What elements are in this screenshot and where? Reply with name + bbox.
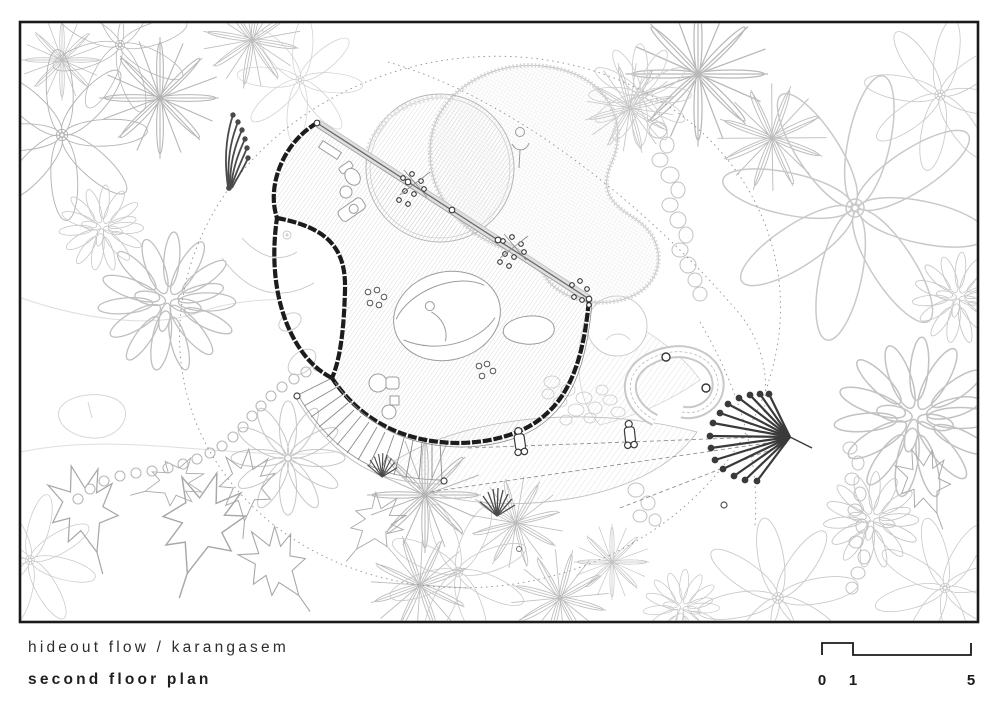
tree-canopy — [587, 296, 647, 356]
site-marker-dot — [721, 502, 727, 508]
project-title: hideout flow / karangasem — [28, 639, 289, 656]
drawing-sheet: hideout flow / karangasem second floor p… — [0, 0, 1000, 707]
floor-plan-canvas: hideout flow / karangasem second floor p… — [0, 0, 1000, 707]
stool — [340, 186, 352, 198]
side-table — [390, 396, 399, 405]
lounge-chair — [369, 374, 399, 392]
drawing-title: second floor plan — [28, 671, 212, 688]
scale-bar: 0 1 5 — [818, 643, 975, 689]
site-marker-dot — [517, 547, 522, 552]
scale-label-1: 1 — [849, 672, 857, 689]
pouf — [382, 405, 396, 419]
scale-label-0: 0 — [818, 672, 826, 689]
scale-bar-outline — [822, 643, 971, 655]
scale-label-5: 5 — [967, 672, 975, 689]
